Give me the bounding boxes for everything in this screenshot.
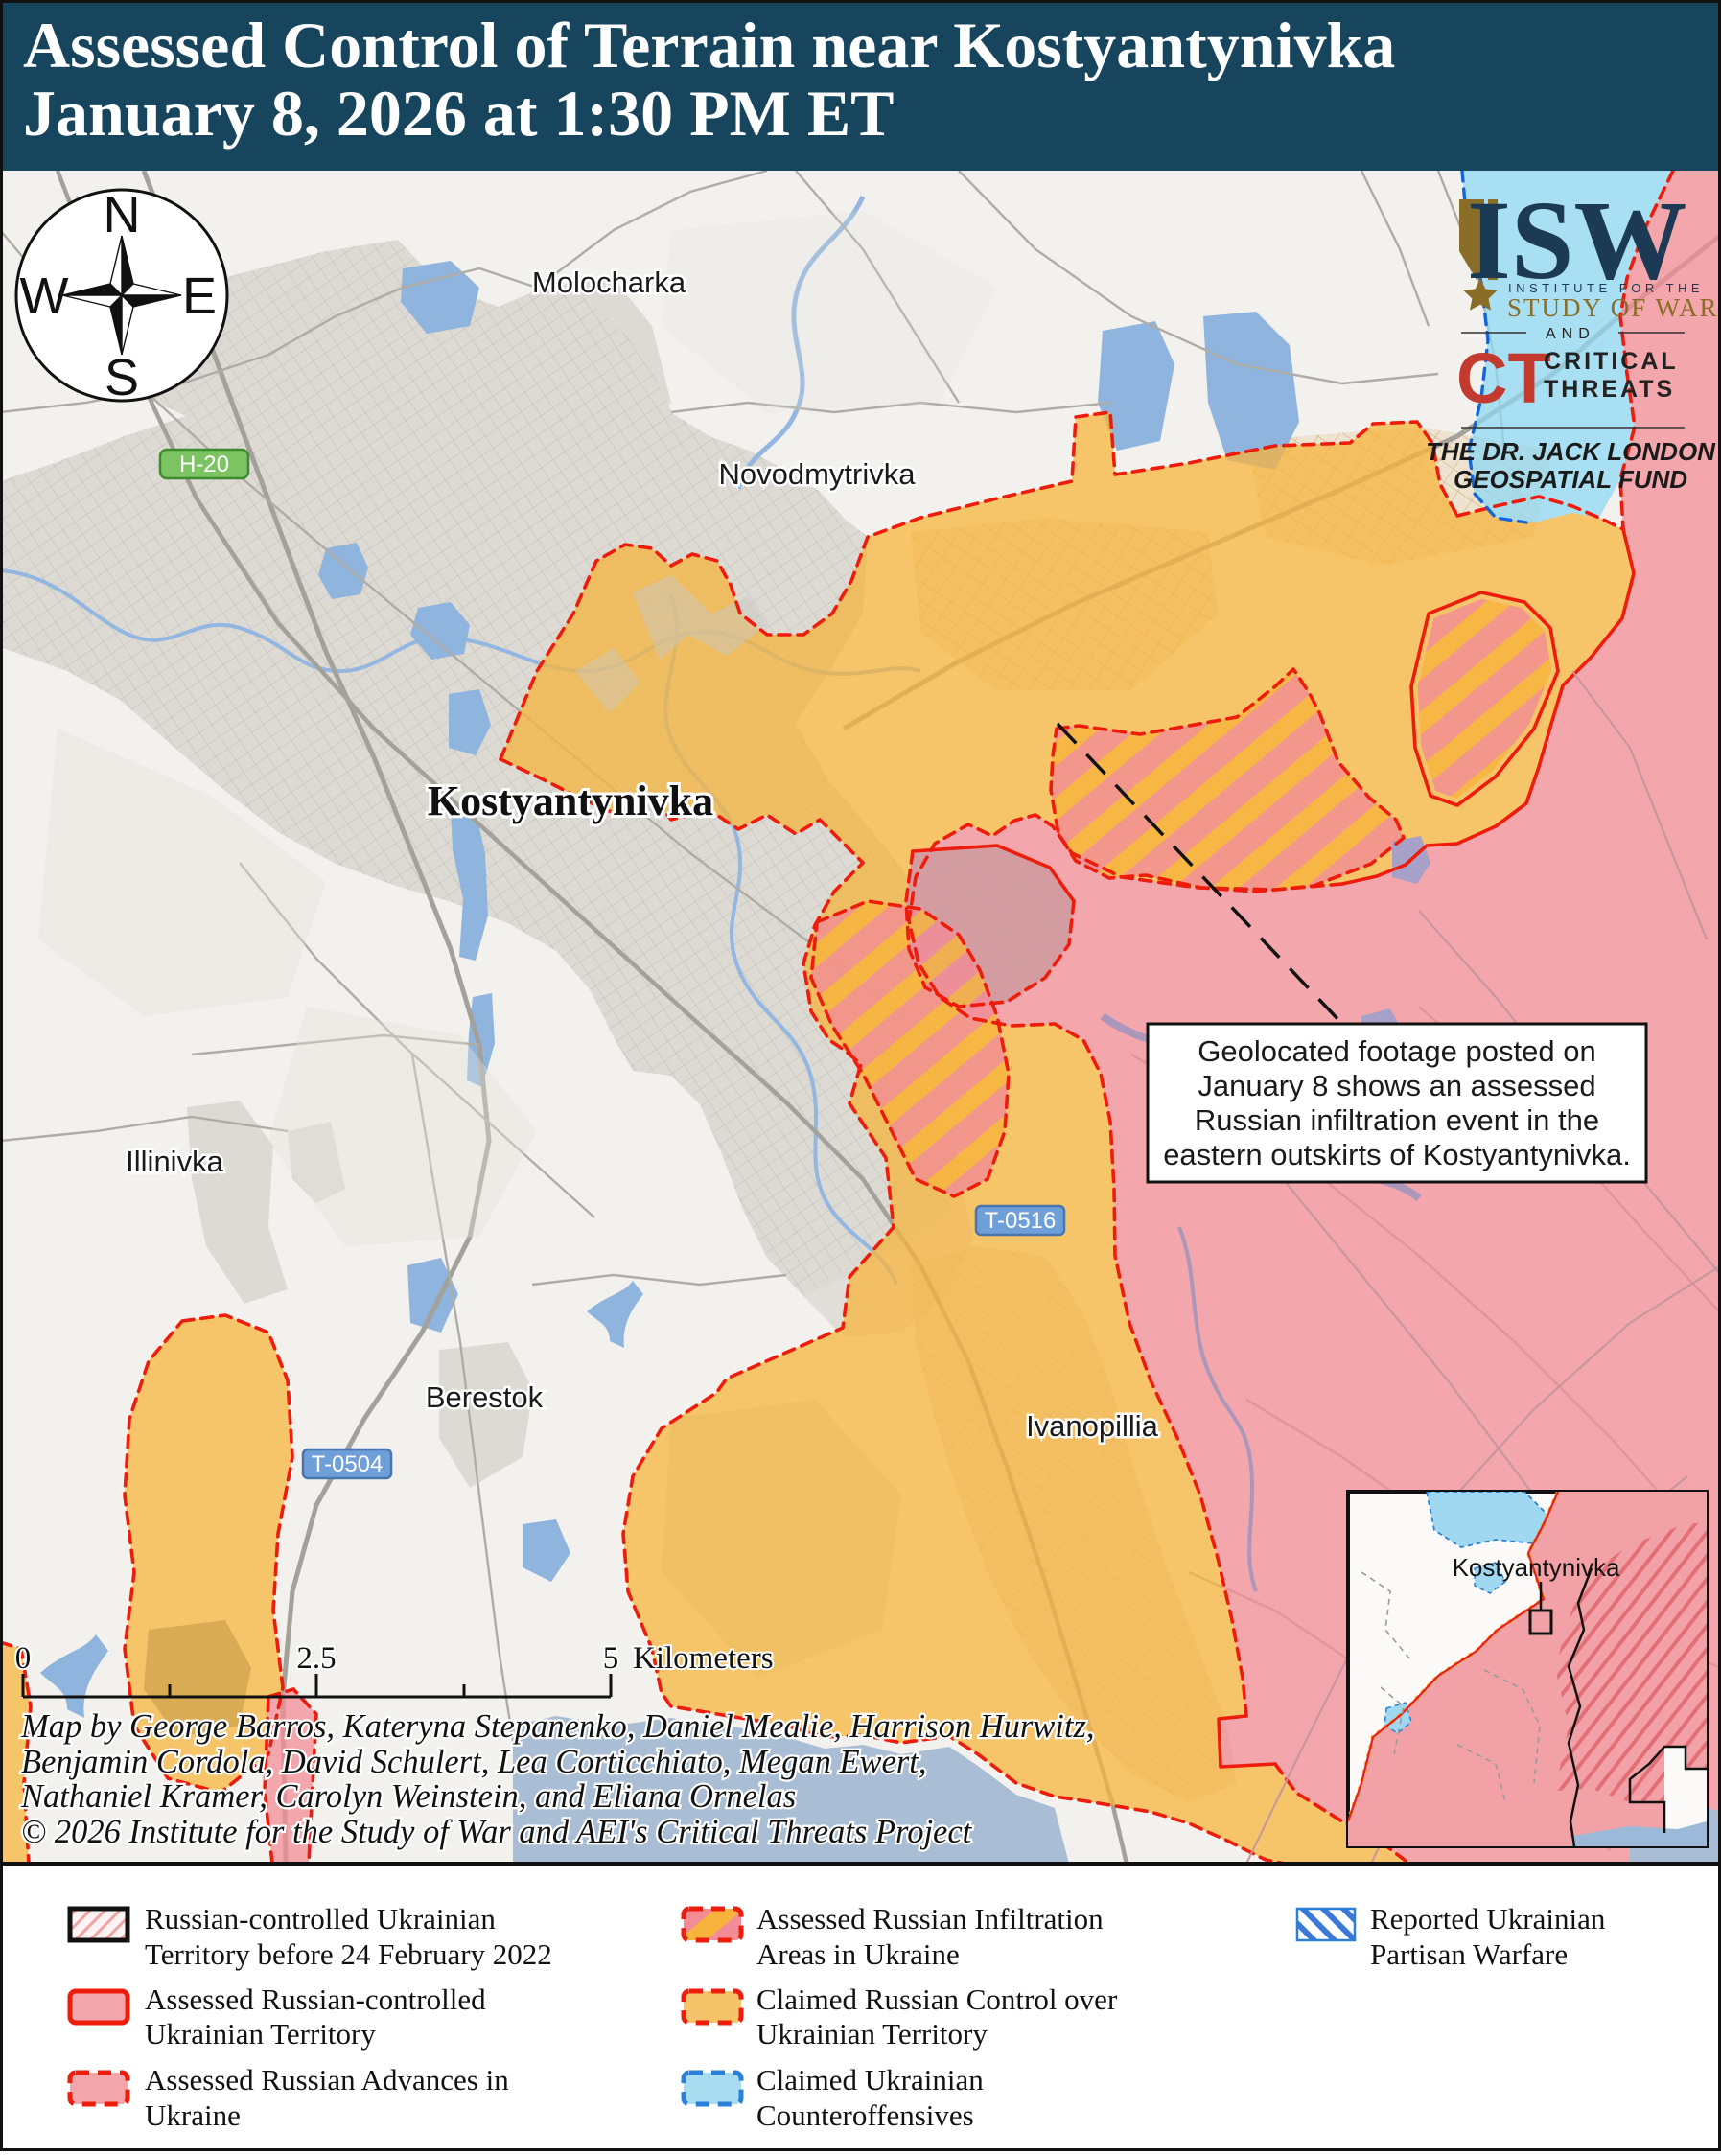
svg-text:5: 5	[603, 1641, 619, 1676]
svg-text:Areas in Ukraine: Areas in Ukraine	[756, 1937, 960, 1971]
svg-text:Benjamin Cordola, David Schule: Benjamin Cordola, David Schulert, Lea Co…	[21, 1744, 927, 1780]
svg-text:Territory before 24 February 2: Territory before 24 February 2022	[145, 1937, 552, 1971]
svg-text:Ukraine: Ukraine	[145, 2098, 241, 2132]
svg-text:STUDY OF WAR: STUDY OF WAR	[1507, 293, 1719, 322]
svg-text:GEOSPATIAL FUND: GEOSPATIAL FUND	[1454, 465, 1687, 494]
svg-text:Kostyantynivka: Kostyantynivka	[428, 777, 713, 824]
svg-text:Geolocated footage posted on: Geolocated footage posted on	[1198, 1034, 1595, 1068]
svg-text:Molocharka: Molocharka	[532, 266, 686, 299]
svg-text:January 8 shows an assessed: January 8 shows an assessed	[1198, 1069, 1595, 1102]
svg-text:CRITICAL: CRITICAL	[1544, 348, 1679, 375]
svg-text:Nathaniel Kramer, Carolyn Wein: Nathaniel Kramer, Carolyn Weinstein, and…	[20, 1778, 796, 1815]
svg-text:Assessed Russian Infiltration: Assessed Russian Infiltration	[756, 1902, 1104, 1936]
svg-text:Russian-controlled Ukrainian: Russian-controlled Ukrainian	[145, 1902, 496, 1936]
svg-text:THREATS: THREATS	[1544, 376, 1675, 403]
svg-text:Claimed Russian Control over: Claimed Russian Control over	[756, 1982, 1118, 2016]
svg-text:Map by George Barros, Kateryna: Map by George Barros, Kateryna Stepanenk…	[20, 1708, 1095, 1745]
svg-text:Berestok: Berestok	[426, 1380, 544, 1414]
svg-text:Ivanopillia: Ivanopillia	[1026, 1409, 1159, 1443]
svg-text:W: W	[20, 267, 69, 325]
svg-text:2.5: 2.5	[296, 1641, 336, 1676]
svg-text:S: S	[105, 349, 139, 406]
svg-text:Russian infiltration event in: Russian infiltration event in the	[1195, 1103, 1599, 1137]
svg-text:Partisan Warfare: Partisan Warfare	[1370, 1937, 1568, 1971]
svg-text:THE DR. JACK LONDON: THE DR. JACK LONDON	[1426, 437, 1716, 466]
svg-text:Claimed Ukrainian: Claimed Ukrainian	[756, 2063, 984, 2097]
svg-text:Assessed Russian-controlled: Assessed Russian-controlled	[145, 1982, 486, 2016]
svg-text:0: 0	[15, 1641, 32, 1676]
svg-text:T-0504: T-0504	[312, 1451, 384, 1477]
svg-text:January 8, 2026 at 1:30 PM ET: January 8, 2026 at 1:30 PM ET	[23, 77, 895, 150]
svg-text:T-0516: T-0516	[985, 1208, 1057, 1234]
svg-text:Novodmytrivka: Novodmytrivka	[719, 457, 917, 491]
svg-text:H-20: H-20	[179, 452, 229, 477]
svg-text:N: N	[104, 186, 141, 243]
svg-text:CT: CT	[1456, 338, 1551, 418]
svg-text:Ukrainian Territory: Ukrainian Territory	[756, 2017, 988, 2051]
svg-text:AND: AND	[1546, 326, 1595, 342]
svg-text:© 2026 Institute for the Study: © 2026 Institute for the Study of War an…	[21, 1814, 973, 1850]
svg-text:Counteroffensives: Counteroffensives	[756, 2098, 974, 2132]
svg-text:Assessed Control of Terrain ne: Assessed Control of Terrain near Kostyan…	[23, 9, 1395, 81]
svg-text:Kostyantynivka: Kostyantynivka	[1453, 1553, 1620, 1582]
svg-text:Illinivka: Illinivka	[126, 1145, 223, 1178]
svg-text:eastern outskirts of Kostyanty: eastern outskirts of Kostyantynivka.	[1163, 1138, 1631, 1171]
svg-text:Assessed Russian Advances in: Assessed Russian Advances in	[145, 2063, 509, 2097]
svg-text:Ukrainian Territory: Ukrainian Territory	[145, 2017, 376, 2051]
svg-text:Reported Ukrainian: Reported Ukrainian	[1370, 1902, 1606, 1936]
svg-text:E: E	[182, 267, 217, 325]
svg-text:Kilometers: Kilometers	[633, 1641, 774, 1676]
